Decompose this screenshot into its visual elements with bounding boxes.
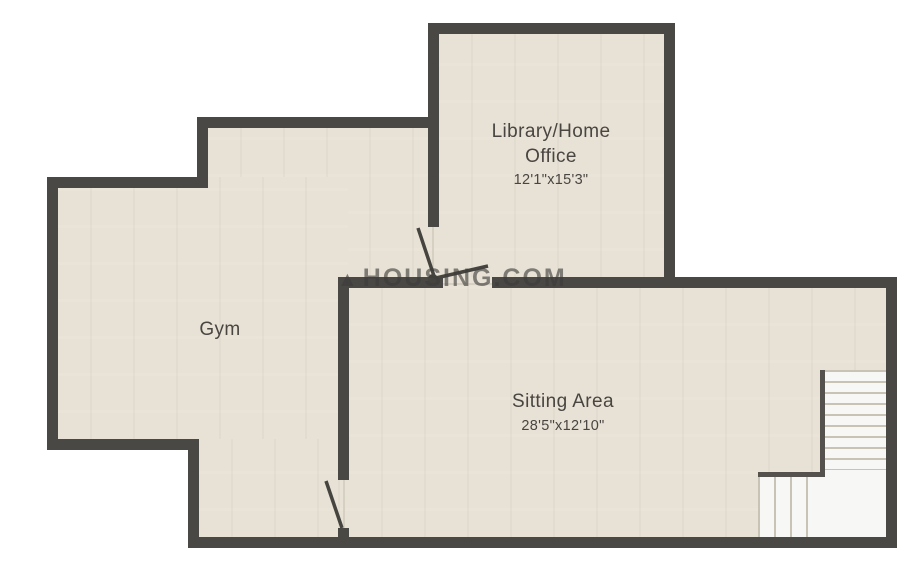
housing-watermark-text: HOUSING.COM bbox=[363, 264, 567, 292]
sitting-bottom-door-leaf bbox=[326, 481, 342, 528]
floorplan-canvas: ▲HOUSING.COM Library/Home Office 12'1"x1… bbox=[0, 0, 922, 571]
housing-watermark: ▲HOUSING.COM bbox=[337, 264, 567, 293]
housing-logo-triangle-icon: ▲ bbox=[337, 268, 360, 291]
